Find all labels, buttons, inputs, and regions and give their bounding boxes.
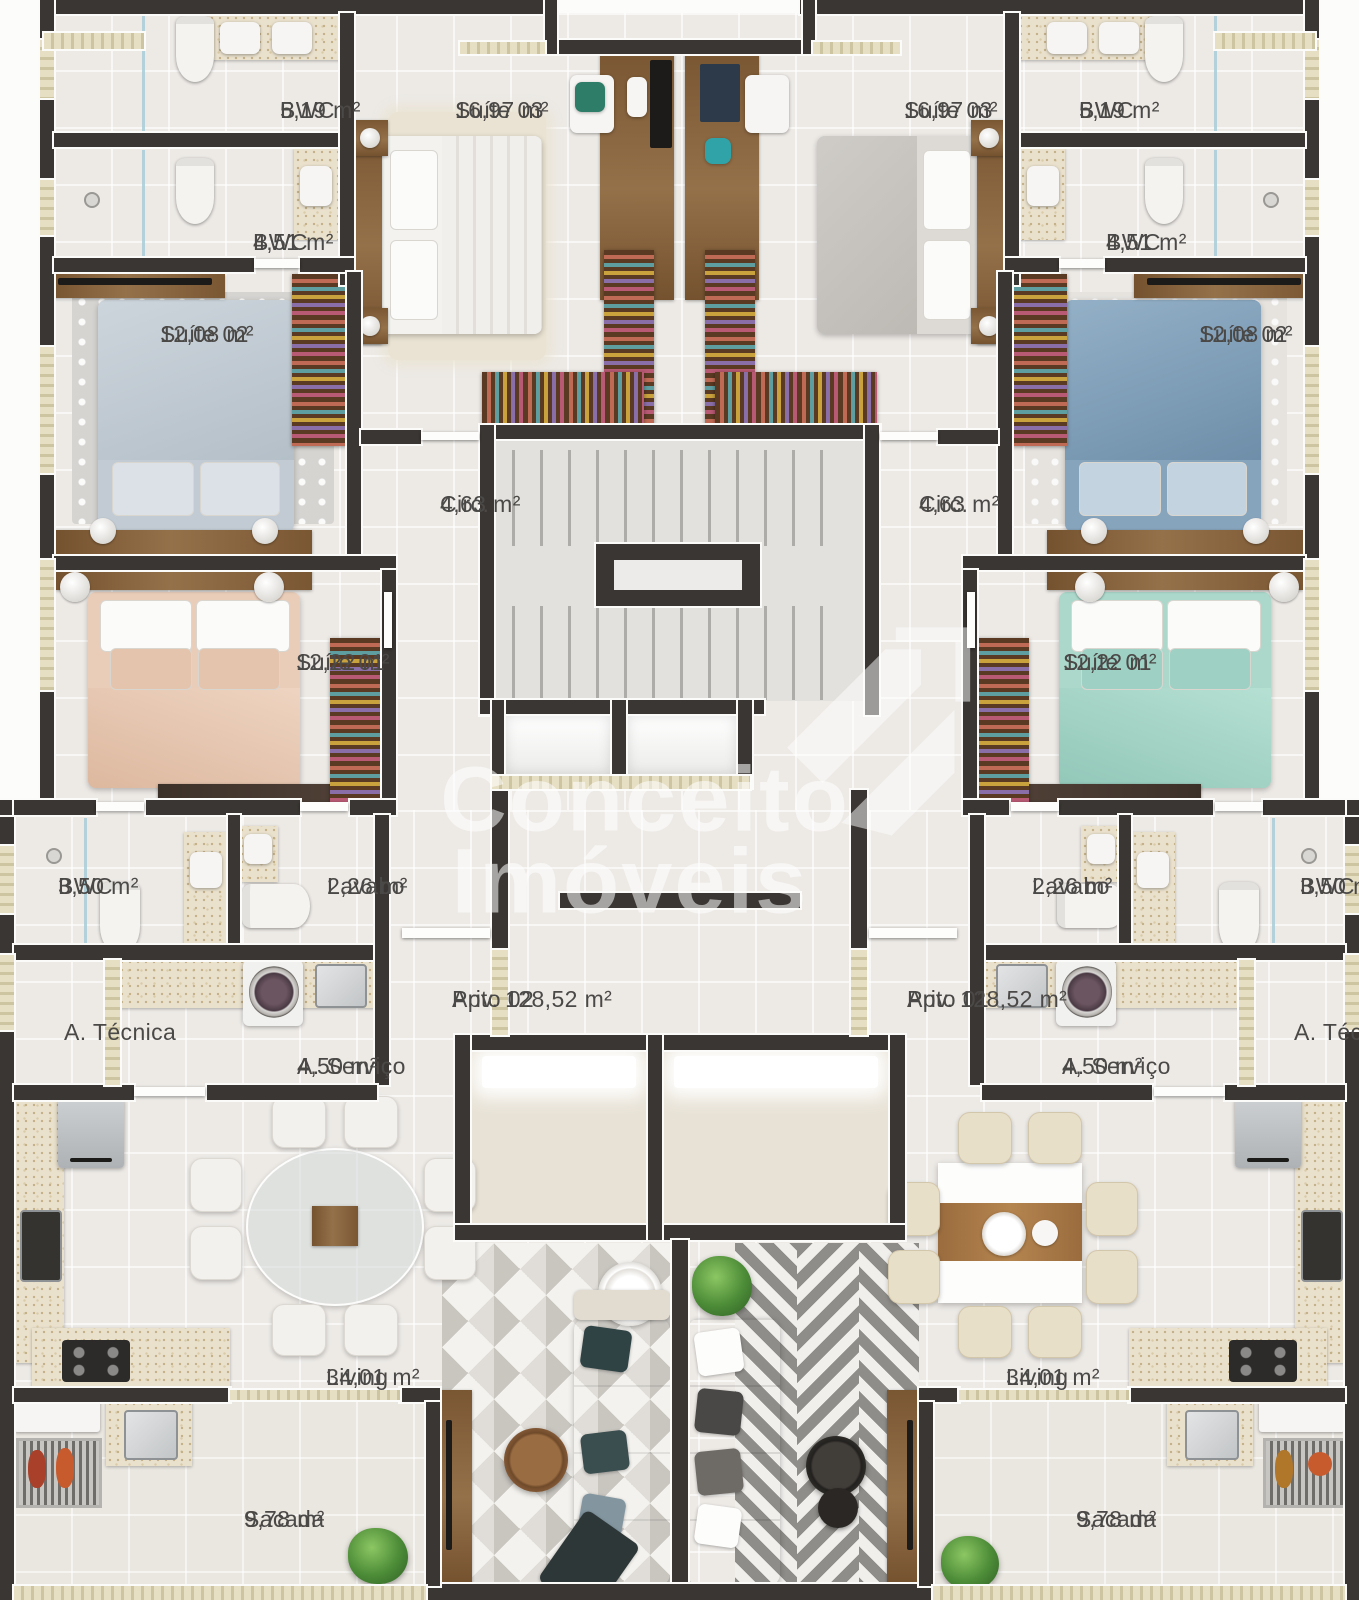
sofa-pillow xyxy=(693,1503,742,1549)
sofa-armrest-left xyxy=(574,1290,670,1320)
pillow xyxy=(112,462,194,516)
column-atecnica-inner-right xyxy=(1239,960,1254,1085)
duvet xyxy=(442,136,542,334)
bowl-large-right xyxy=(982,1212,1026,1256)
corebox-wall-divider xyxy=(648,1035,662,1240)
pillow xyxy=(198,648,280,690)
window-sacada-bottom-left xyxy=(14,1586,426,1600)
tv-panel-left xyxy=(438,1390,472,1585)
wall-suite01-south-right-c xyxy=(963,800,1009,815)
wall-top-center-recessed xyxy=(545,40,815,54)
wall-baths-east-right xyxy=(1005,13,1019,285)
plant-pot-icon-right xyxy=(705,138,731,164)
washer-drum-right xyxy=(1062,966,1112,1018)
door-icon-entry-apto02 xyxy=(402,928,490,938)
sink-bwc519-right-2 xyxy=(1099,22,1139,54)
pillow-green xyxy=(575,82,605,112)
dining-chair xyxy=(190,1158,242,1212)
wall-baths-east-left xyxy=(340,13,354,285)
door-icon-bwc350-right xyxy=(1215,802,1263,811)
toilet-bwc519-left xyxy=(176,16,214,82)
grill-meat xyxy=(1308,1452,1332,1476)
wall-sacada-north-right-a xyxy=(1129,1388,1345,1402)
room-area: 12,22 m² xyxy=(1063,648,1157,676)
room-area: 12,22 m² xyxy=(296,648,390,676)
coffee-table-right-small xyxy=(818,1488,858,1528)
floor-plan-canvas: BWC 5,19 m² Suíte 03 16,97 m² Suíte 03 1… xyxy=(0,0,1359,1600)
wall-circ-north-left xyxy=(361,430,421,444)
room-area: 9,78 m² xyxy=(244,1505,325,1533)
door-icon-lavabo-left xyxy=(300,802,348,811)
dining-chair xyxy=(1028,1306,1082,1358)
room-area: 5,19 m² xyxy=(280,96,361,124)
wall-top-conn-left xyxy=(545,0,557,54)
wall-bwc350-south-right xyxy=(984,945,1345,960)
window-suite01-left xyxy=(40,560,54,690)
door-icon-lavabo-right xyxy=(1011,802,1059,811)
wall-suite01-south-left-a xyxy=(14,800,96,815)
vanity-bwc350-left xyxy=(184,832,228,948)
room-area: 12,08 m² xyxy=(160,320,254,348)
shower-icon-bwc451-right xyxy=(1263,192,1279,208)
keyboard-icon-left xyxy=(627,77,647,117)
stair-wall-top xyxy=(480,425,880,439)
laptop-icon-right xyxy=(700,64,740,122)
sink-lavabo-left xyxy=(244,834,272,864)
lobby-wall-left xyxy=(492,790,508,950)
toilet-bwc519-right xyxy=(1145,16,1183,82)
plant-sacada-left xyxy=(348,1528,408,1584)
window-atecnica-left xyxy=(0,955,14,1030)
window-bwc350-left xyxy=(0,846,14,913)
lobby-wall-bottom xyxy=(560,893,800,908)
duvet xyxy=(817,136,917,334)
shower-glass-bwc451-left xyxy=(142,150,145,260)
shower-glass-bwc350-right xyxy=(1272,818,1275,946)
lamp-suite02-left-1 xyxy=(90,518,116,544)
corebox-wall-right xyxy=(890,1035,905,1240)
room-area: 4,50 m² xyxy=(297,1052,378,1080)
dining-chair xyxy=(958,1112,1012,1164)
window-top-center-left xyxy=(460,42,545,54)
wall-suite01-south-left-c xyxy=(350,800,396,815)
cooktop-left xyxy=(62,1340,130,1382)
sink-bwc519-left-2 xyxy=(272,22,312,54)
tank-sink-left xyxy=(315,964,367,1008)
bed-suite03-right xyxy=(817,136,979,334)
dining-chair xyxy=(344,1096,398,1148)
lamp-suite01-right-1 xyxy=(1075,572,1105,602)
wall-top-right xyxy=(800,0,1315,14)
wall-left-lower xyxy=(0,800,14,1600)
wall-bwc451-bottom-right-b xyxy=(1005,258,1059,272)
wall-bwc-lavabo-divider-right xyxy=(1119,815,1131,950)
room-area: 4,50 m² xyxy=(1062,1052,1143,1080)
pillow xyxy=(196,600,290,652)
wall-bottom-center xyxy=(426,1584,933,1600)
bench-suite03-right xyxy=(745,75,789,133)
elevator-shaft-right xyxy=(626,714,738,776)
window-suite01-right xyxy=(1305,560,1319,690)
room-area: 16,97 m² xyxy=(455,96,549,124)
tv-icon-suite02-left xyxy=(58,278,212,285)
duvet xyxy=(88,688,300,788)
door-icon-suite02-left xyxy=(254,259,300,268)
window-top-right xyxy=(1215,33,1315,49)
room-area: Priv. 128,52 m² xyxy=(452,985,612,1013)
bed-suite03-left xyxy=(380,136,542,334)
dining-chair xyxy=(1028,1112,1082,1164)
window-suite02-left xyxy=(40,347,54,473)
fridge-handle-right xyxy=(1247,1158,1289,1162)
lamp-suite02-right-2 xyxy=(1243,518,1269,544)
coffee-table-right xyxy=(806,1436,866,1496)
window-top-center-right xyxy=(813,42,900,54)
dining-chair xyxy=(190,1226,242,1280)
sink-sacada-left xyxy=(124,1410,178,1460)
room-area: 4,63 m² xyxy=(440,490,521,518)
lamp-suite03-left-2 xyxy=(360,316,380,336)
pillow xyxy=(1071,600,1163,652)
vestibule-glow-right xyxy=(674,1056,878,1088)
wall-suite01-south-left-b xyxy=(146,800,300,815)
pillow xyxy=(390,240,438,320)
lamp-suite02-left-2 xyxy=(252,518,278,544)
toilet-bwc451-right xyxy=(1145,158,1183,224)
door-icon-bwc350-left xyxy=(96,802,144,811)
wall-bwc350-south-left xyxy=(14,945,375,960)
kitchen-sink-right xyxy=(1301,1210,1343,1282)
wall-bwc451-bottom-left-a xyxy=(54,258,254,272)
wall-suite02-east-left xyxy=(347,272,361,570)
sink-sacada-right xyxy=(1185,1410,1239,1460)
room-area: 3,50 m² xyxy=(1300,872,1359,900)
dining-chair xyxy=(958,1306,1012,1358)
wall-bwc519-bottom-left xyxy=(54,133,354,147)
sofa-pillow xyxy=(694,1388,744,1437)
bowl-small-right xyxy=(1032,1220,1058,1246)
sill-sacada-left xyxy=(230,1390,400,1400)
room-area: 4,63 m² xyxy=(919,490,1000,518)
tv-icon-suite02-right xyxy=(1147,278,1301,285)
room-area: 4,51 m² xyxy=(253,228,334,256)
door-icon-suite01-right xyxy=(967,592,975,648)
window-bwc451-left xyxy=(40,180,54,235)
room-area: 3,50 m² xyxy=(58,872,139,900)
pillow xyxy=(923,150,971,230)
room-title: A. Técnica xyxy=(1294,1018,1359,1046)
lamp-suite02-right-1 xyxy=(1081,518,1107,544)
wall-bwc519-bottom-right xyxy=(1005,133,1305,147)
coffee-table-left xyxy=(504,1428,568,1492)
wall-lavabo-east-right xyxy=(970,815,984,1085)
vanity-bwc350-right xyxy=(1131,832,1175,948)
tv-icon-living-left xyxy=(446,1420,452,1550)
wall-circ-north-right xyxy=(938,430,998,444)
lamp-suite01-left-2 xyxy=(254,572,284,602)
door-icon-entry-apto01 xyxy=(869,928,957,938)
lamp-suite03-right-1 xyxy=(979,128,999,148)
pillow xyxy=(100,600,192,652)
pillow xyxy=(200,462,280,516)
wall-top-left xyxy=(45,0,557,14)
sofa-pillow xyxy=(694,1448,744,1497)
room-area: 2,26 m² xyxy=(327,872,408,900)
sink-bwc350-right xyxy=(1137,852,1169,888)
vestibule-glow-left xyxy=(482,1056,636,1088)
room-area: 4,51 m² xyxy=(1106,228,1187,256)
wall-lavabo-east-left xyxy=(375,815,389,1085)
lamp-suite01-left-1 xyxy=(60,572,90,602)
kitchen-counter-bottom-right xyxy=(1129,1328,1327,1388)
shower-icon-bwc350-left xyxy=(46,848,62,864)
sink-bwc350-left xyxy=(190,852,222,888)
wall-suite01-south-right-a xyxy=(1263,800,1345,815)
room-area: 34,01 m² xyxy=(326,1363,420,1391)
toilet-bwc350-right xyxy=(1219,882,1259,954)
pillow xyxy=(390,150,438,230)
plant-sacada-right xyxy=(941,1536,999,1590)
wall-suite0201-divider-right xyxy=(963,556,1305,570)
dining-chair xyxy=(344,1304,398,1356)
lamp-suite01-right-2 xyxy=(1269,572,1299,602)
bed-suite01-right xyxy=(1059,592,1271,788)
dining-chair xyxy=(272,1304,326,1356)
corebox-wall-top xyxy=(455,1035,905,1050)
sofa-pillow xyxy=(693,1327,745,1377)
pillow xyxy=(1079,462,1161,516)
sill-sacada-right xyxy=(959,1390,1129,1400)
window-top-left xyxy=(44,33,144,49)
wall-aservico-south-right-b xyxy=(982,1085,1152,1100)
elevator-wall-left xyxy=(492,700,504,788)
dining-chair xyxy=(888,1250,940,1304)
corebox-wall-left xyxy=(455,1035,470,1240)
toilet-lavabo-left xyxy=(242,884,310,928)
room-area: 16,97 m² xyxy=(904,96,998,124)
wall-suite02-east-right xyxy=(998,272,1012,570)
door-icon-suite01-left xyxy=(384,592,392,648)
room-title: A. Técnica xyxy=(64,1018,176,1046)
rug-living-right-band2 xyxy=(797,1243,859,1593)
grill-meat xyxy=(56,1448,74,1488)
elevator-shaft-left xyxy=(504,714,612,776)
elevator-door-sill xyxy=(492,776,750,789)
plant-living-right xyxy=(692,1256,752,1316)
pillow xyxy=(923,240,971,320)
stair-treads-lower xyxy=(512,606,848,700)
living-divider-wall xyxy=(672,1240,688,1600)
stair-treads-upper xyxy=(512,450,848,546)
wall-right-lower xyxy=(1345,800,1359,1600)
grill-meat xyxy=(1275,1450,1293,1488)
elevator-wall-right xyxy=(738,700,752,788)
washer-drum-left xyxy=(249,966,299,1018)
wall-aservico-south-right-a xyxy=(1225,1085,1345,1100)
cooktop-right xyxy=(1229,1340,1297,1382)
room-area: 5,19 m² xyxy=(1079,96,1160,124)
sink-bwc519-right-1 xyxy=(1047,22,1087,54)
fridge-handle-left xyxy=(70,1158,112,1162)
dining-chair xyxy=(1086,1250,1138,1304)
sink-lavabo-right xyxy=(1087,834,1115,864)
lobby-wall-right xyxy=(851,790,867,950)
door-icon-circ-left xyxy=(421,432,479,440)
wall-aservico-south-left-b xyxy=(207,1085,377,1100)
elevator-wall-mid xyxy=(612,700,626,788)
window-suite02-right xyxy=(1305,347,1319,473)
wall-bwc451-bottom-right-a xyxy=(1105,258,1305,272)
grill-meat xyxy=(28,1450,46,1488)
window-sacada-bottom-right xyxy=(933,1586,1345,1600)
monitor-icon-left xyxy=(650,60,672,148)
pillow xyxy=(1167,462,1247,516)
wall-sacada-east-right xyxy=(919,1402,933,1586)
door-icon-suite02-right xyxy=(1059,259,1105,268)
toilet-bwc451-left xyxy=(176,158,214,224)
wall-suite01-south-right-b xyxy=(1059,800,1213,815)
sink-bwc519-left-1 xyxy=(220,22,260,54)
window-bwc451-right xyxy=(1305,180,1319,235)
wall-sacada-east-left xyxy=(426,1402,440,1586)
wall-sacada-north-left-a xyxy=(14,1388,230,1402)
shower-icon-bwc350-right xyxy=(1301,848,1317,864)
lamp-suite03-right-2 xyxy=(979,316,999,336)
corebox-wall-bottom xyxy=(455,1225,905,1240)
wardrobe-suite02-left xyxy=(292,274,348,446)
table-runner-left xyxy=(312,1206,358,1246)
dining-chair xyxy=(1086,1182,1138,1236)
lobby-column-right xyxy=(851,950,867,1035)
room-area: Priv. 128,52 m² xyxy=(907,985,1067,1013)
sofa-pillow xyxy=(579,1325,632,1373)
bed-suite01-left xyxy=(88,592,300,788)
lamp-suite03-left-1 xyxy=(360,128,380,148)
room-area: 34,01 m² xyxy=(1006,1363,1100,1391)
stair-wall-left xyxy=(480,425,494,715)
stair-wall-right xyxy=(865,425,879,715)
sink-bwc451-left xyxy=(300,166,332,206)
room-area: 12,08 m² xyxy=(1199,320,1293,348)
door-icon-aservico-left xyxy=(134,1087,205,1096)
sofa-pillow xyxy=(580,1429,631,1474)
pillow xyxy=(1167,600,1261,652)
wall-sacada-north-right-b xyxy=(919,1388,959,1402)
wardrobe-suite02-right xyxy=(1011,274,1067,446)
wall-suite0201-divider-left xyxy=(54,556,396,570)
tv-icon-living-right xyxy=(907,1420,913,1550)
wall-bwc-lavabo-divider-left xyxy=(228,815,240,950)
wall-bwc451-bottom-left-b xyxy=(300,258,354,272)
door-icon-circ-right xyxy=(880,432,938,440)
shower-glass-bwc451-right xyxy=(1214,150,1217,260)
door-icon-aservico-right xyxy=(1154,1087,1225,1096)
room-area: 9,78 m² xyxy=(1076,1505,1157,1533)
shower-icon-bwc451-left xyxy=(84,192,100,208)
pillow xyxy=(1169,648,1251,690)
wall-aservico-south-left-a xyxy=(14,1085,134,1100)
dining-chair xyxy=(272,1096,326,1148)
stair-landing-slot xyxy=(614,560,742,590)
sink-bwc451-right xyxy=(1027,166,1059,206)
pillow xyxy=(110,648,192,690)
duvet xyxy=(1059,688,1271,788)
kitchen-sink-left xyxy=(20,1210,62,1282)
room-area: 2,26 m² xyxy=(1032,872,1113,900)
tv-panel-right xyxy=(887,1390,921,1585)
